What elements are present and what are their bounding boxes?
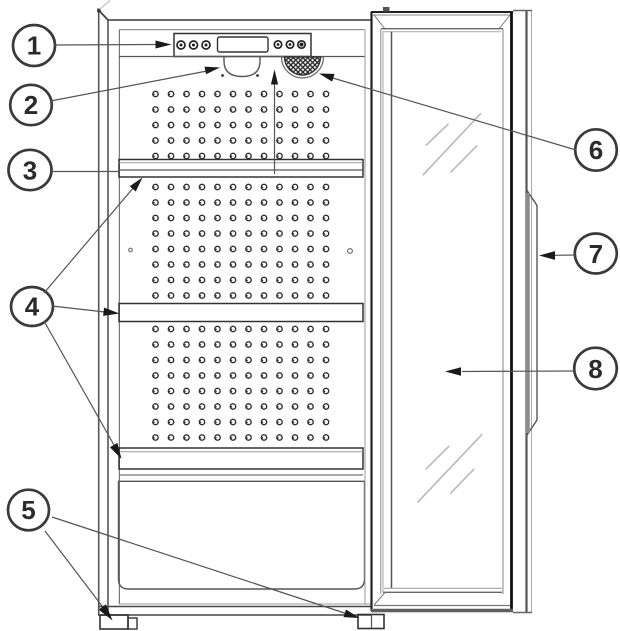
svg-text:3: 3 xyxy=(23,156,37,186)
svg-text:7: 7 xyxy=(589,239,603,269)
svg-text:8: 8 xyxy=(588,354,602,384)
svg-text:5: 5 xyxy=(21,495,35,525)
svg-text:6: 6 xyxy=(589,135,603,165)
svg-text:2: 2 xyxy=(24,90,38,120)
svg-text:4: 4 xyxy=(25,292,40,322)
svg-text:1: 1 xyxy=(27,31,41,61)
